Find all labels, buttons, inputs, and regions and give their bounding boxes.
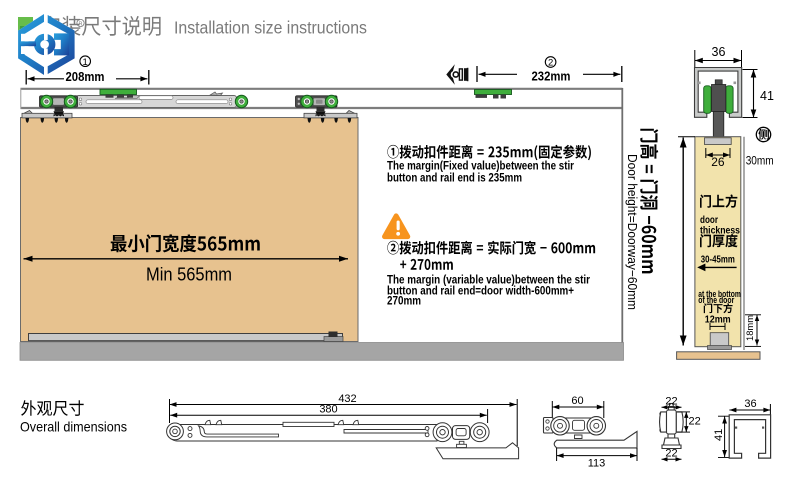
svg-text:Min 565mm: Min 565mm — [146, 265, 232, 285]
svg-text:30-45mm: 30-45mm — [701, 255, 735, 266]
svg-text:door: door — [700, 215, 718, 226]
svg-text:36: 36 — [744, 398, 756, 410]
svg-text:button and rail end is 235mm: button and rail end is 235mm — [387, 170, 522, 184]
svg-text:22: 22 — [689, 415, 701, 427]
svg-text:30mm: 30mm — [746, 153, 774, 167]
svg-text:R: R — [79, 21, 83, 27]
svg-text:12mm: 12mm — [705, 313, 731, 325]
svg-text:26: 26 — [711, 155, 725, 169]
svg-text:2: 2 — [548, 58, 553, 69]
svg-text:Door height=Doorway−60mm: Door height=Doorway−60mm — [625, 154, 640, 310]
svg-text:432: 432 — [338, 393, 356, 405]
svg-text:Installation size instructions: Installation size instructions — [174, 18, 367, 38]
svg-text:113: 113 — [588, 458, 606, 470]
svg-text:1: 1 — [83, 57, 88, 68]
svg-text:41: 41 — [713, 429, 725, 441]
svg-text:208mm: 208mm — [66, 70, 105, 84]
svg-text:270mm: 270mm — [387, 294, 421, 308]
svg-text:60: 60 — [571, 395, 583, 407]
svg-text:18mm: 18mm — [745, 315, 756, 341]
svg-text:232mm: 232mm — [532, 69, 571, 83]
svg-text:of the door: of the door — [698, 295, 734, 305]
svg-text:Overall dimensions: Overall dimensions — [20, 419, 127, 435]
svg-text:41: 41 — [760, 89, 774, 103]
svg-text:380: 380 — [319, 404, 337, 416]
svg-text:36: 36 — [712, 45, 726, 59]
